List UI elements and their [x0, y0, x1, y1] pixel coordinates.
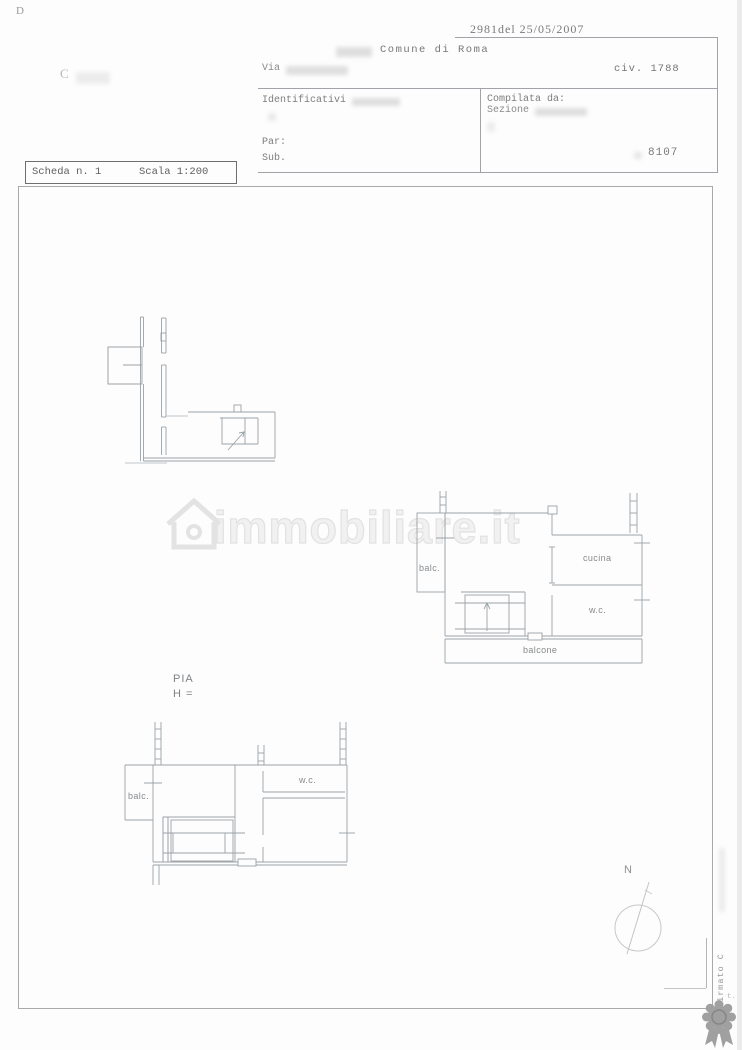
- header-divider-2: [258, 172, 718, 173]
- section-mark: [487, 122, 495, 132]
- header-divider-1: [258, 88, 718, 89]
- header-divider-vertical: [480, 88, 481, 172]
- header-right-border: [717, 37, 718, 173]
- section-label: Sezione: [487, 105, 529, 116]
- parcel-label: Par:: [262, 137, 286, 148]
- sheet-number-prefix: [634, 152, 642, 159]
- civic-number: civ. 1788: [614, 63, 680, 75]
- identifiers-mark: [268, 113, 276, 121]
- label-wc-lower: w.c.: [299, 775, 316, 785]
- protocol-underline: [455, 37, 718, 38]
- street-label: Via: [262, 63, 280, 74]
- identifiers-label: Identificativi: [262, 95, 346, 106]
- logo-smudge: [76, 72, 110, 84]
- vertical-smudge: [719, 848, 725, 912]
- floor-plan-upper: [95, 305, 295, 480]
- label-balc-middle: balc.: [419, 563, 440, 573]
- municipality-title: Comune di Roma: [380, 44, 489, 56]
- protocol-number: 2981del 25/05/2007: [470, 22, 584, 37]
- floor-plan-middle: balc. cucina w.c. balcone: [405, 485, 675, 680]
- notch-horizontal: [664, 988, 706, 989]
- municipality-smudge: [336, 47, 372, 57]
- scheda-label: Scheda n. 1: [32, 166, 101, 178]
- award-rosette-icon: [696, 998, 742, 1050]
- scala-label: Scala 1:200: [139, 166, 208, 178]
- label-balcone: balcone: [523, 645, 557, 655]
- sub-label: Sub.: [262, 153, 286, 164]
- signature-vertical-text: Firmato C: [716, 920, 726, 1008]
- label-cucina: cucina: [583, 553, 611, 563]
- identifiers-smudge: [352, 98, 400, 106]
- scan-edge-shadow: [737, 0, 742, 1050]
- sheet-number: 8107: [648, 147, 678, 159]
- compass-north-label: N: [624, 864, 632, 876]
- compass: N: [598, 860, 678, 975]
- floor-plan-lower: balc. w.c.: [115, 665, 385, 892]
- scanned-cadastral-document: D C 2981del 25/05/2007 Comune di Roma Vi…: [0, 0, 742, 1050]
- label-balc-lower: balc.: [128, 791, 149, 801]
- logo-fragment: C: [60, 66, 69, 82]
- notch-vertical: [706, 938, 707, 988]
- street-smudge: [286, 66, 348, 75]
- compiled-by-label: Compilata da:: [487, 94, 565, 105]
- scheda-box: Scheda n. 1 Scala 1:200: [25, 161, 237, 184]
- label-wc-middle: w.c.: [589, 605, 606, 615]
- section-smudge: [535, 108, 587, 116]
- compass-icon: [598, 860, 678, 970]
- corner-mark: D: [16, 5, 24, 17]
- rosette-watermark: [696, 998, 742, 1050]
